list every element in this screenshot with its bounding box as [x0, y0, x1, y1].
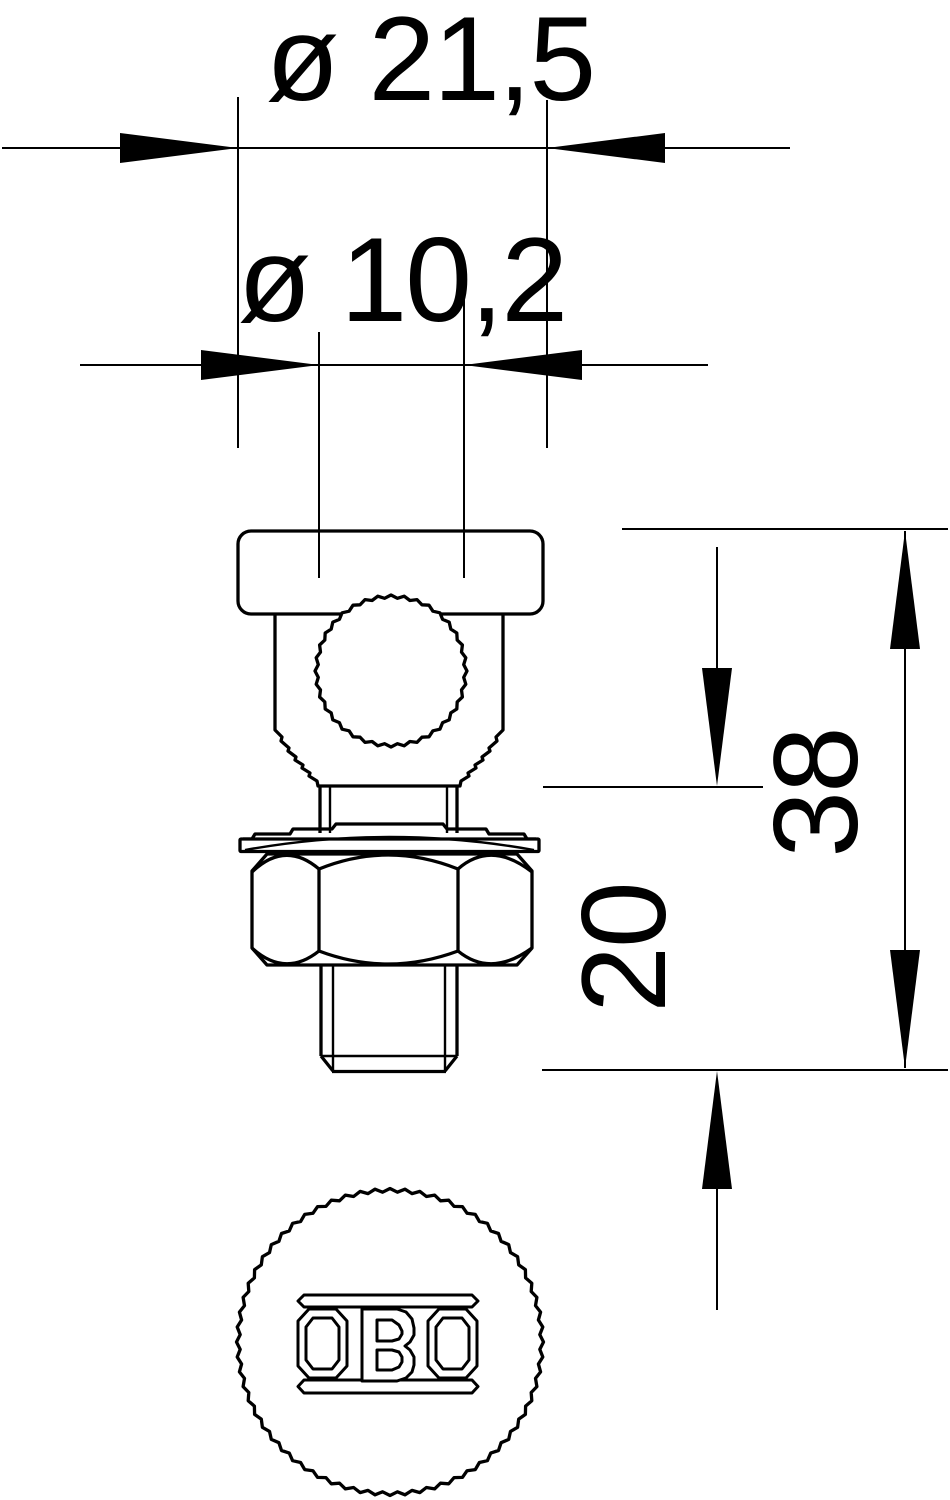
logo-top-bar — [298, 1295, 478, 1307]
neck — [320, 786, 457, 833]
side-view — [238, 531, 543, 1072]
arrow-down-icon — [890, 950, 920, 1068]
arrow-up-icon — [702, 1071, 732, 1189]
logo-letter-b — [362, 1309, 414, 1381]
dim-label-head-diameter: ø 21,5 — [266, 0, 594, 119]
arrow-left-icon — [547, 133, 665, 163]
arrow-right-icon — [120, 133, 238, 163]
arrow-up-icon — [890, 531, 920, 649]
knurled-ball — [315, 595, 467, 747]
technical-drawing: ø 21,5 ø 10,2 38 20 — [0, 0, 950, 1500]
arrow-down-icon — [702, 668, 732, 786]
threaded-stud — [321, 965, 457, 1072]
arrow-left-icon — [464, 350, 582, 380]
dim-label-overall-height: 38 — [756, 728, 876, 857]
arrow-right-icon — [201, 350, 319, 380]
washer-band — [240, 839, 539, 852]
dim-label-clamp-height: 20 — [564, 883, 684, 1012]
bottom-view — [237, 1189, 544, 1496]
dim-label-bore-diameter: ø 10,2 — [238, 220, 566, 340]
hex-nut — [252, 854, 532, 965]
